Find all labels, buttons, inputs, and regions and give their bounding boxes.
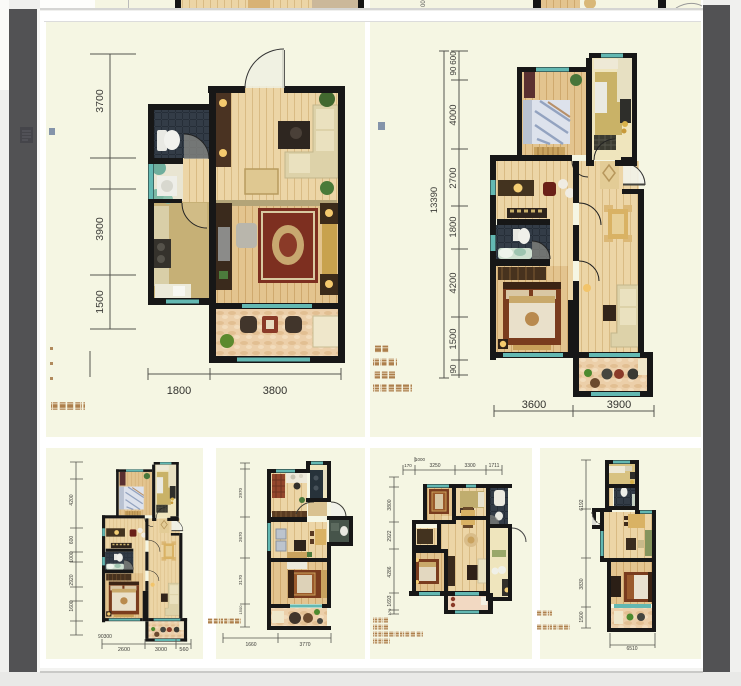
svg-text:90300: 90300 xyxy=(98,634,112,640)
svg-text:1500: 1500 xyxy=(448,328,459,349)
svg-text:13390: 13390 xyxy=(429,187,440,213)
svg-text:6510: 6510 xyxy=(626,646,637,652)
svg-text:2600: 2600 xyxy=(118,647,130,653)
svg-text:3600: 3600 xyxy=(522,399,546,411)
svg-text:6192: 6192 xyxy=(579,499,585,510)
svg-text:1500: 1500 xyxy=(94,290,106,314)
svg-text:2922: 2922 xyxy=(387,530,393,541)
svg-text:3770: 3770 xyxy=(299,642,310,648)
svg-text:3250: 3250 xyxy=(429,463,440,469)
svg-text:170: 170 xyxy=(404,463,412,468)
svg-text:3300: 3300 xyxy=(464,463,475,469)
svg-text:3830: 3830 xyxy=(579,578,585,589)
svg-text:1711: 1711 xyxy=(489,463,500,469)
svg-text:4000: 4000 xyxy=(448,104,459,125)
svg-text:2670: 2670 xyxy=(238,531,243,542)
svg-text:1500: 1500 xyxy=(238,605,243,615)
svg-text:1600: 1600 xyxy=(69,600,75,611)
svg-text:3000: 3000 xyxy=(155,647,167,653)
svg-text:3900: 3900 xyxy=(94,217,106,241)
svg-text:3900: 3900 xyxy=(607,399,631,411)
svg-text:90: 90 xyxy=(449,66,458,75)
svg-text:600: 600 xyxy=(449,51,458,65)
svg-text:3800: 3800 xyxy=(387,499,393,510)
svg-text:170: 170 xyxy=(387,608,392,615)
svg-text:560: 560 xyxy=(179,647,188,653)
svg-text:1000: 1000 xyxy=(415,457,426,462)
svg-text:3170: 3170 xyxy=(238,574,243,585)
svg-text:1800: 1800 xyxy=(167,385,191,397)
svg-text:4286: 4286 xyxy=(387,566,393,577)
svg-text:00: 00 xyxy=(421,0,427,7)
svg-text:1800: 1800 xyxy=(448,216,459,237)
svg-text:1660: 1660 xyxy=(245,642,256,648)
svg-text:600: 600 xyxy=(69,536,75,545)
svg-text:3800: 3800 xyxy=(263,385,287,397)
svg-text:3700: 3700 xyxy=(94,89,106,113)
svg-text:1693: 1693 xyxy=(387,595,393,606)
svg-text:4200: 4200 xyxy=(69,494,75,505)
svg-text:2920: 2920 xyxy=(69,574,75,585)
svg-text:90: 90 xyxy=(449,364,458,373)
svg-text:2700: 2700 xyxy=(448,167,459,188)
svg-text:1000: 1000 xyxy=(69,551,75,562)
svg-text:4200: 4200 xyxy=(448,272,459,293)
svg-text:1500: 1500 xyxy=(579,611,585,622)
svg-text:2970: 2970 xyxy=(238,487,243,498)
